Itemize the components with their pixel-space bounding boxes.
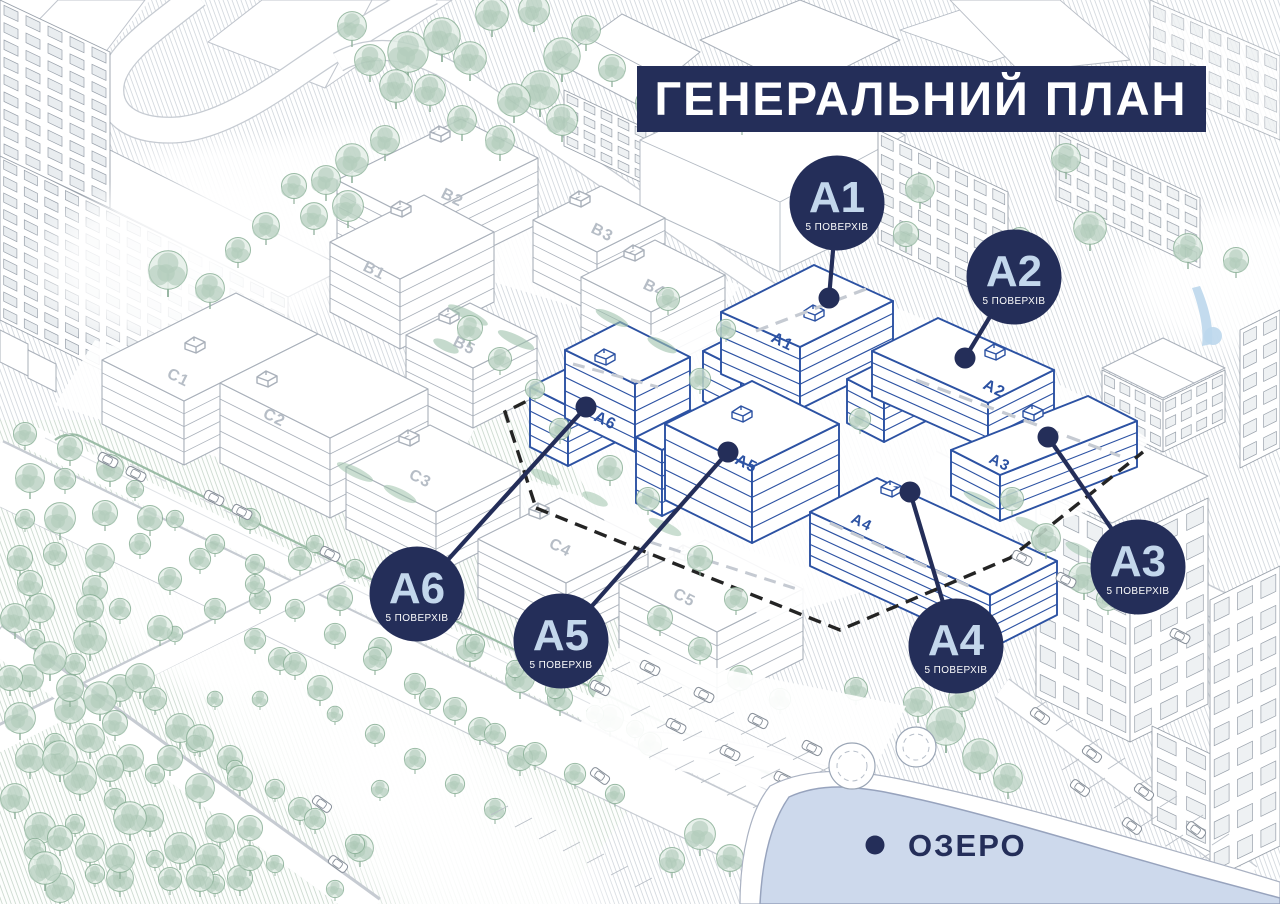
- svg-text:А3: А3: [1110, 537, 1166, 586]
- svg-text:ГЕНЕРАЛЬНИЙ ПЛАН: ГЕНЕРАЛЬНИЙ ПЛАН: [655, 72, 1188, 125]
- svg-text:5 ПОВЕРХІВ: 5 ПОВЕРХІВ: [386, 613, 449, 624]
- svg-text:ОЗЕРО: ОЗЕРО: [908, 828, 1027, 863]
- svg-text:5 ПОВЕРХІВ: 5 ПОВЕРХІВ: [530, 660, 593, 671]
- svg-text:А2: А2: [986, 247, 1042, 296]
- svg-text:А5: А5: [533, 611, 589, 660]
- svg-text:А4: А4: [928, 616, 985, 665]
- svg-text:5 ПОВЕРХІВ: 5 ПОВЕРХІВ: [1107, 586, 1170, 597]
- svg-text:5 ПОВЕРХІВ: 5 ПОВЕРХІВ: [983, 296, 1046, 307]
- svg-text:5 ПОВЕРХІВ: 5 ПОВЕРХІВ: [925, 665, 988, 676]
- svg-text:А1: А1: [809, 173, 865, 222]
- svg-text:5 ПОВЕРХІВ: 5 ПОВЕРХІВ: [806, 222, 869, 233]
- svg-text:А6: А6: [389, 564, 445, 613]
